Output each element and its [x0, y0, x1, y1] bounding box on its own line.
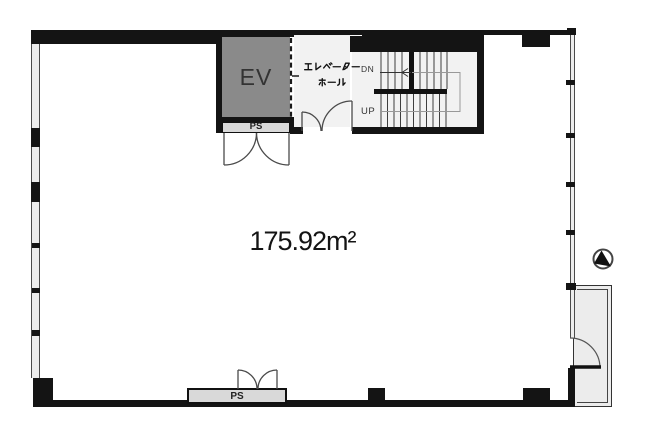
elevator-hall-corner [290, 117, 294, 129]
left-wall-tick [32, 243, 40, 248]
stair-wall-stub [350, 36, 362, 52]
pipe-shaft-top-label: PS [222, 121, 290, 133]
top-right-corner-cap [567, 28, 576, 35]
bottom-left-column [33, 378, 53, 407]
stairs-down-label: DN [361, 64, 374, 74]
bottom-column-2 [523, 388, 550, 401]
right-wall-tick [566, 283, 576, 290]
left-window-wall [31, 44, 40, 378]
top-wall-left [31, 30, 222, 44]
elevator-label: EV [222, 64, 290, 90]
right-wall-tick [566, 133, 575, 138]
bay-inner-line [577, 289, 608, 403]
bottom-wall [33, 400, 575, 407]
stair-bottom-wall [352, 127, 483, 134]
top-wall-over-elevator [216, 30, 294, 37]
right-wall-tick [566, 182, 575, 187]
stairs-up-label: UP [361, 106, 375, 117]
left-wall-tick [31, 182, 40, 202]
right-wall-tick [566, 230, 575, 235]
elevator-double-door [224, 133, 289, 165]
left-wall-tick [31, 128, 40, 147]
right-wall-tick [566, 80, 575, 85]
elevator-hall-room [294, 35, 350, 127]
bottom-ps-double-door [238, 370, 277, 389]
north-arrow-icon [594, 250, 613, 269]
bottom-column-1 [368, 388, 385, 401]
floor-area-label: 175.92m² [180, 226, 425, 257]
pipe-shaft-bottom-label: PS [187, 390, 287, 403]
floor-plan: EV PS PS DN UP 175.92m² [0, 0, 651, 428]
right-wall-lower [568, 368, 575, 407]
top-column [522, 30, 550, 47]
left-wall-tick [32, 288, 40, 293]
stair-top-wall [362, 35, 483, 52]
stair-right-wall [477, 30, 484, 134]
left-wall-tick [32, 330, 40, 336]
